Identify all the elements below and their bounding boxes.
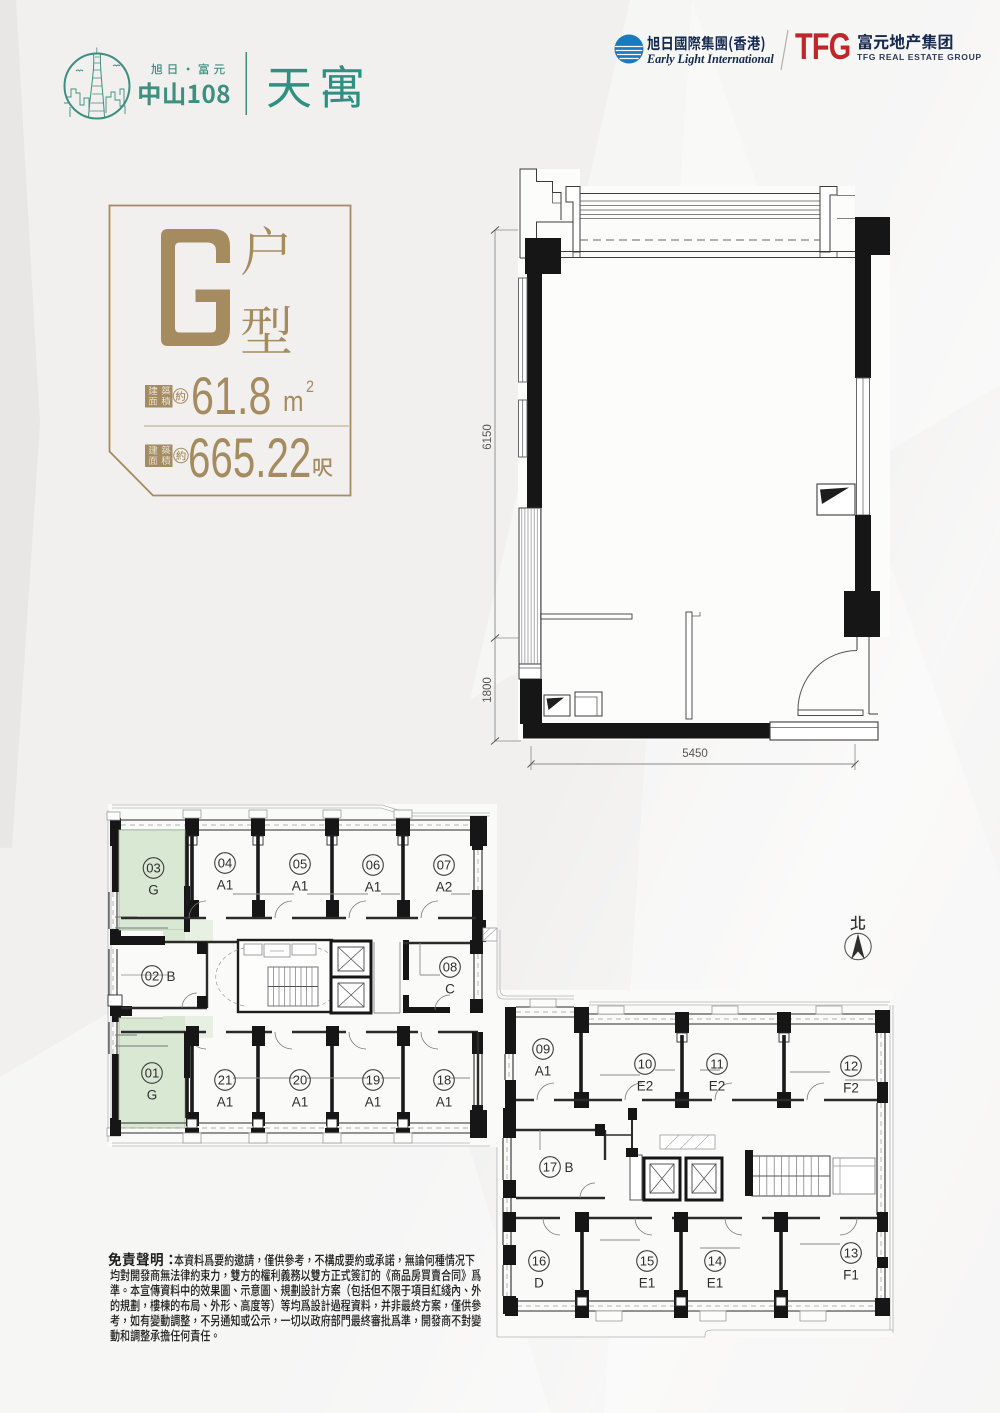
svg-text:A2: A2 [436,880,453,895]
svg-text:12: 12 [844,1059,858,1074]
svg-text:05: 05 [293,857,307,872]
svg-text:A1: A1 [217,1095,234,1110]
svg-text:16: 16 [532,1254,546,1269]
svg-text:TFG REAL ESTATE GROUP: TFG REAL ESTATE GROUP [857,52,982,62]
svg-text:F2: F2 [843,1081,859,1096]
svg-text:08: 08 [443,960,457,975]
svg-text:01: 01 [145,1066,159,1081]
svg-text:1800: 1800 [482,677,494,703]
svg-text:B: B [564,1160,573,1175]
svg-text:15: 15 [640,1254,654,1269]
svg-text:07: 07 [437,858,451,873]
svg-text:C: C [445,982,455,997]
svg-text:A1: A1 [217,878,234,893]
svg-text:Early Light International: Early Light International [646,52,774,66]
svg-text:5450: 5450 [682,748,708,760]
svg-text:TFG: TFG [795,27,850,68]
svg-text:11: 11 [710,1057,724,1072]
svg-text:E1: E1 [707,1276,724,1291]
svg-text:B: B [166,969,175,984]
svg-text:2: 2 [306,378,314,396]
svg-text:E1: E1 [639,1276,656,1291]
svg-text:m: m [283,385,304,417]
svg-text:04: 04 [218,856,232,871]
svg-text:665.22: 665.22 [188,428,311,490]
svg-text:03: 03 [146,861,160,876]
svg-text:G: G [147,1088,158,1103]
svg-text:19: 19 [366,1073,380,1088]
svg-text:61.8: 61.8 [191,367,271,426]
svg-text:02: 02 [145,969,159,984]
svg-text:6150: 6150 [482,424,494,450]
svg-text:10: 10 [638,1057,652,1072]
svg-text:A1: A1 [365,1095,382,1110]
svg-text:E2: E2 [637,1079,654,1094]
svg-text:14: 14 [708,1254,722,1269]
svg-text:18: 18 [437,1073,451,1088]
svg-text:E2: E2 [709,1079,726,1094]
svg-text:G: G [148,883,159,898]
svg-text:D: D [534,1276,544,1291]
svg-text:A1: A1 [365,880,382,895]
svg-text:17: 17 [543,1160,557,1175]
svg-text:21: 21 [218,1073,232,1088]
svg-text:06: 06 [366,858,380,873]
svg-text:09: 09 [536,1042,550,1057]
svg-text:A1: A1 [436,1095,453,1110]
svg-text:F1: F1 [843,1268,859,1283]
svg-text:A1: A1 [292,879,309,894]
svg-text:A1: A1 [292,1095,309,1110]
svg-text:A1: A1 [535,1064,552,1079]
svg-text:13: 13 [844,1246,858,1261]
svg-text:20: 20 [293,1073,307,1088]
